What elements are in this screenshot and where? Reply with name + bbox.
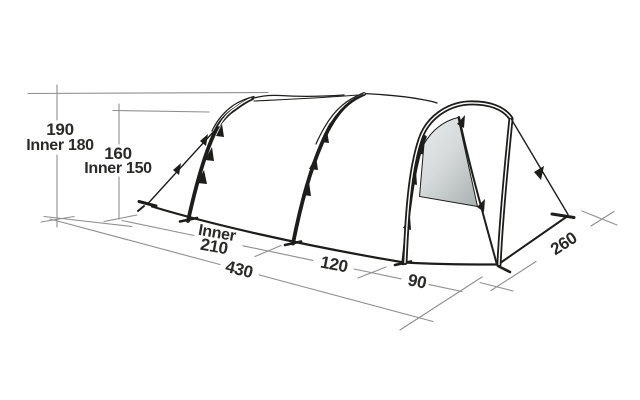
label-mid-inner-height: Inner 150 <box>84 160 152 177</box>
front-right-peg <box>552 214 574 218</box>
back-peg-prong <box>138 206 144 211</box>
dimension-lines <box>28 85 617 330</box>
segment-tick-210-120 <box>255 246 281 257</box>
label-inner-height: Inner 180 <box>26 137 94 154</box>
guy-line-clip <box>173 163 181 175</box>
ridge-line-front <box>362 94 437 104</box>
inner-corner-tick <box>104 215 137 222</box>
label-segment-front: 90 <box>406 270 428 292</box>
back-peg <box>139 202 156 207</box>
front-guy-line <box>511 119 568 215</box>
guy-line-clip <box>534 166 544 180</box>
segment-tick-120-90 <box>358 267 386 278</box>
tent-dimension-diagram: 190 Inner 180 160 Inner 150 Inner 210 43… <box>0 0 640 400</box>
back-pole <box>188 99 252 222</box>
front-corner-peg <box>498 266 510 272</box>
height-160-reference-line <box>113 111 209 113</box>
fabric-clip <box>477 199 485 212</box>
label-total-length: 430 <box>223 257 254 282</box>
middle-pole-foot-peg <box>285 242 301 246</box>
label-segment-mid: 120 <box>319 253 350 277</box>
back-pole-foot-peg <box>180 218 197 222</box>
tent-front-bottom-edge <box>405 263 497 265</box>
label-width: 260 <box>547 228 580 259</box>
width-near-tick <box>480 283 513 292</box>
diagram-canvas: 190 Inner 180 160 Inner 150 Inner 210 43… <box>0 0 640 400</box>
middle-pole <box>293 94 364 244</box>
height-190-reference-line <box>28 93 268 94</box>
label-inner-length: 210 <box>199 235 229 258</box>
